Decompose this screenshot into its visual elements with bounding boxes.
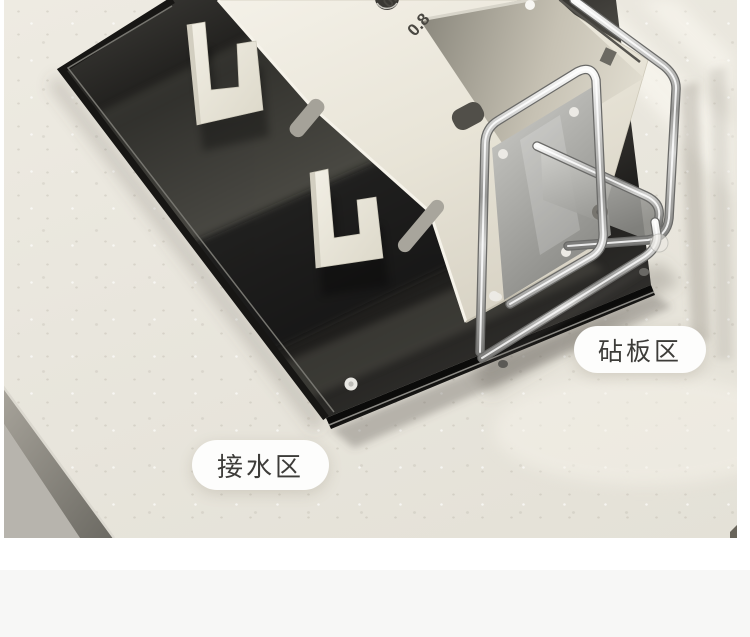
photo-corner-mark xyxy=(730,525,737,538)
rack-foot xyxy=(639,268,649,276)
highlight-dot xyxy=(525,0,535,10)
cutting-board-zone-label: 砧板区 xyxy=(574,326,706,373)
product-photo: 0.5 0.8 砧板区 接水区 xyxy=(4,0,737,538)
water-catch-zone-label: 接水区 xyxy=(192,440,329,490)
photo-graphics xyxy=(4,0,737,538)
countertop-edge-graphic xyxy=(4,385,114,538)
section-gap xyxy=(0,538,750,570)
rack-foot xyxy=(498,360,508,368)
next-section-band xyxy=(0,570,750,637)
suction-pad xyxy=(650,234,668,252)
product-detail-section: 0.5 0.8 砧板区 接水区 xyxy=(0,0,750,637)
